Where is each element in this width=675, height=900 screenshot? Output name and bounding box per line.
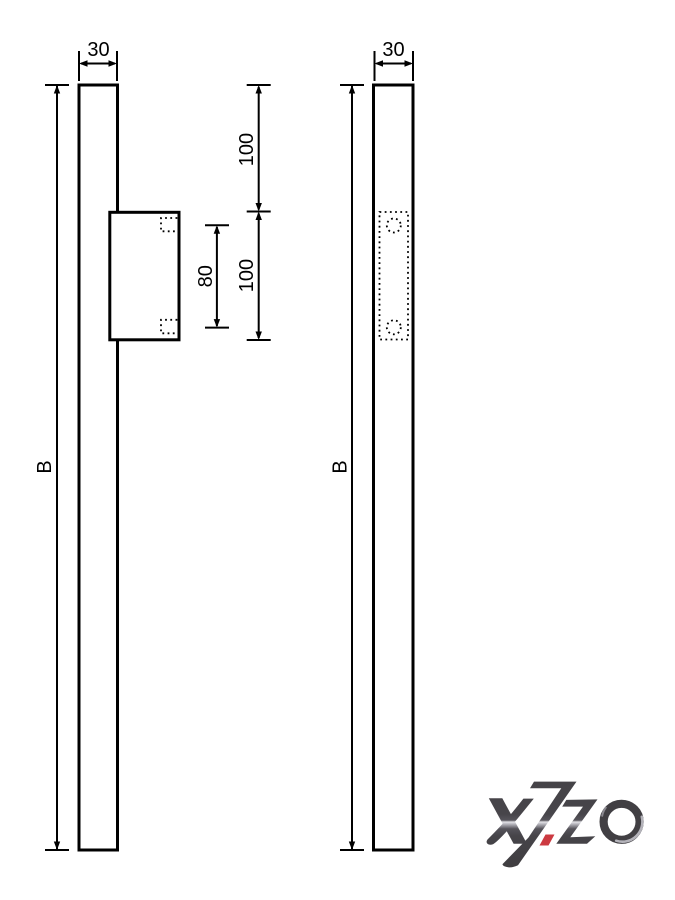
svg-text:30: 30 [87, 39, 109, 61]
svg-text:80: 80 [195, 265, 217, 287]
svg-text:B: B [34, 460, 56, 473]
svg-text:100: 100 [236, 259, 258, 292]
svg-text:30: 30 [382, 39, 404, 61]
svg-text:B: B [330, 460, 352, 473]
svg-text:100: 100 [236, 133, 258, 166]
